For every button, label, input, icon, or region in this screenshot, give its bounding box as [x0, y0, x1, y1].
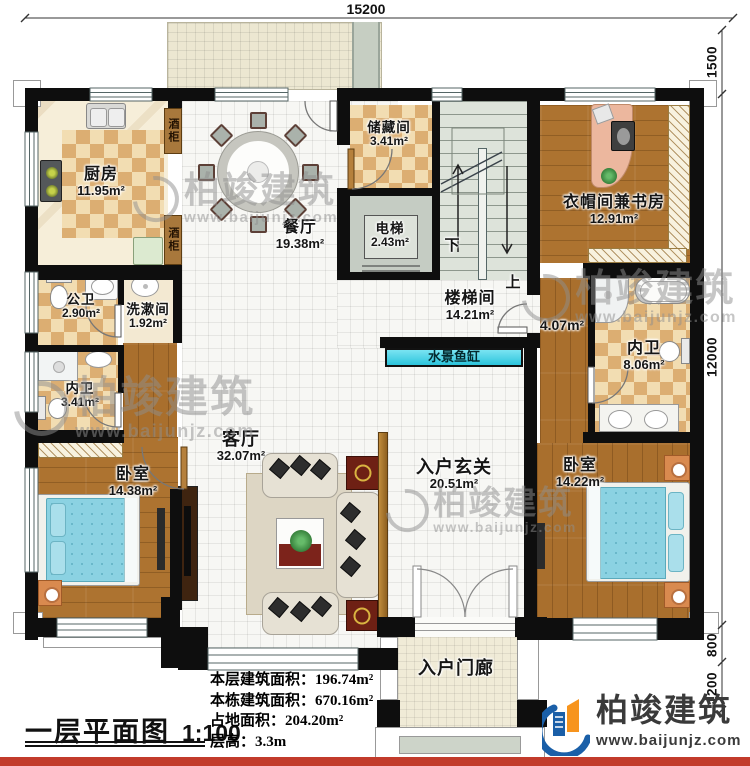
sill-top-left: [13, 80, 41, 107]
table-decor: [354, 607, 371, 624]
pillow: [668, 492, 684, 530]
hallway-floor: [123, 343, 177, 437]
pillow: [50, 541, 66, 575]
room-label-living: 客厅32.07m²: [217, 429, 265, 464]
toilet: [681, 338, 690, 364]
terrace-doormat: [352, 22, 380, 88]
bed-sheet-fold: [589, 487, 601, 579]
shower-tray: [38, 350, 78, 381]
room-label-cloak-study: 衣帽间兼书房12.91m²: [563, 194, 665, 226]
lamp: [671, 462, 687, 478]
room-label-porch: 入户门廊: [418, 658, 494, 678]
tub-inner: [640, 281, 687, 302]
brand-block: 柏竣建筑 www.baijunjz.com: [542, 694, 741, 756]
room-label-stairwell: 楼梯间14.21m²: [444, 290, 495, 322]
basin-oval: [644, 410, 668, 429]
chair: [250, 216, 267, 233]
stat-land-area: 占地面积：204.20m²: [210, 711, 373, 732]
room-label-kitchen: 厨房11.95m²: [77, 166, 125, 198]
sill-bedroom-left: [43, 637, 173, 648]
stair-up-label: 上: [505, 275, 520, 292]
shower-drain: [53, 361, 65, 373]
sink-basin-right: [108, 108, 125, 127]
porch-rail-left: [380, 637, 398, 700]
terrace-floor: [167, 22, 382, 90]
dim-main-height: 12000: [705, 337, 720, 377]
room-label-bedroom-right: 卧室14.22m²: [556, 457, 604, 489]
room-label-elevator: 电梯2.43m²: [371, 221, 409, 250]
side-table: [346, 600, 378, 631]
lamp: [671, 589, 687, 605]
stair-stringer: [478, 148, 487, 280]
sill-bottom-right: [689, 612, 719, 634]
washroom-basin: [131, 275, 159, 297]
wardrobe-left: [38, 437, 123, 458]
tv-cabinet: [178, 486, 198, 601]
bed-duvet: [600, 487, 666, 579]
room-label-entrance-hall: 入户玄关20.51m²: [416, 457, 492, 492]
stair-down-label: 下: [444, 238, 459, 255]
stats-block: 本层建筑面积：196.74m² 本栋建筑面积：670.16m² 占地面积：204…: [210, 670, 373, 752]
tv-bedroom-left: [157, 508, 165, 570]
chair: [302, 164, 319, 181]
wine-cabinet-label: 酒柜: [165, 227, 181, 253]
bathtub: [635, 277, 690, 304]
tv-bedroom-right: [537, 523, 545, 569]
lamp: [44, 587, 60, 603]
stat-storey-height: 层高：3.3m: [210, 732, 373, 753]
wood-partition: [378, 432, 388, 634]
bed-sheet-fold: [124, 498, 137, 582]
room-label-inner-bath-right: 内卫8.06m²: [623, 340, 664, 372]
dim-terrace-height: 1500: [705, 46, 720, 78]
brand-logo-icon: [542, 694, 590, 756]
title-underline: [25, 741, 205, 747]
nightstand: [664, 582, 690, 608]
shower-drain: [604, 291, 612, 299]
room-label-washroom: 洗漱间1.92m²: [126, 302, 170, 331]
pillow: [50, 503, 66, 537]
desk-plant: [601, 168, 617, 184]
toilet: [46, 272, 72, 283]
side-table: [346, 456, 379, 490]
table-decor: [354, 465, 371, 482]
closet-bottom: [588, 248, 687, 263]
toilet: [37, 396, 46, 420]
basin-oval: [608, 410, 632, 429]
dim-porch-step: 800: [705, 633, 720, 657]
room-label-corridor: 4.07m²: [540, 318, 584, 334]
sink-basin-left: [90, 108, 107, 127]
vanity-counter: [599, 404, 679, 432]
sill-bottom-left: [13, 612, 43, 634]
dining-table-center: [247, 161, 269, 183]
table-plant: [290, 530, 312, 552]
room-label-storage: 储藏间3.41m²: [367, 120, 411, 149]
burner: [46, 185, 58, 197]
nightstand: [38, 580, 62, 606]
stat-building-area: 本栋建筑面积：670.16m²: [210, 691, 373, 712]
burner: [46, 167, 58, 179]
porch-threshold: [415, 617, 515, 637]
stove: [40, 160, 62, 202]
wine-cabinet-bottom: 酒柜: [164, 215, 182, 265]
floorplan-page: { "document": { "title": "一层平面图", "scale…: [0, 0, 750, 766]
tv-screen: [184, 506, 191, 576]
washbasin: [85, 351, 112, 368]
nightstand: [664, 455, 690, 481]
chair: [198, 164, 215, 181]
porch-step-inner: [399, 736, 521, 754]
kitchen-sink: [86, 103, 126, 129]
room-label-bedroom-left: 卧室14.38m²: [109, 466, 157, 498]
stat-floor-area: 本层建筑面积：196.74m²: [210, 670, 373, 691]
closet-right: [668, 105, 690, 250]
brand-website: www.baijunjz.com: [596, 732, 741, 749]
chair: [250, 112, 267, 129]
wine-cabinet-label: 酒柜: [165, 118, 181, 144]
dim-top-width: 15200: [347, 1, 386, 17]
sill-top-right: [689, 80, 717, 107]
porch-rail-right: [517, 637, 539, 700]
water-feature-label: 水景鱼缸: [428, 350, 480, 365]
room-label-inner-bath-left: 内卫3.41m²: [61, 381, 99, 410]
porch-floor: [398, 637, 517, 727]
basin-drain: [143, 284, 148, 289]
monitor-screen: [617, 128, 630, 145]
wine-cabinet-top: 酒柜: [164, 108, 182, 154]
room-label-dining: 餐厅19.38m²: [276, 219, 324, 251]
corridor-floor: [540, 278, 588, 443]
room-label-public-bath: 公卫2.90m²: [62, 292, 100, 321]
brand-name: 柏竣建筑: [596, 694, 741, 728]
footer-red-bar: [0, 757, 750, 766]
fridge: [133, 237, 163, 265]
computer-monitor: [611, 121, 635, 151]
pillow: [668, 534, 684, 572]
coffee-table: [276, 518, 324, 569]
